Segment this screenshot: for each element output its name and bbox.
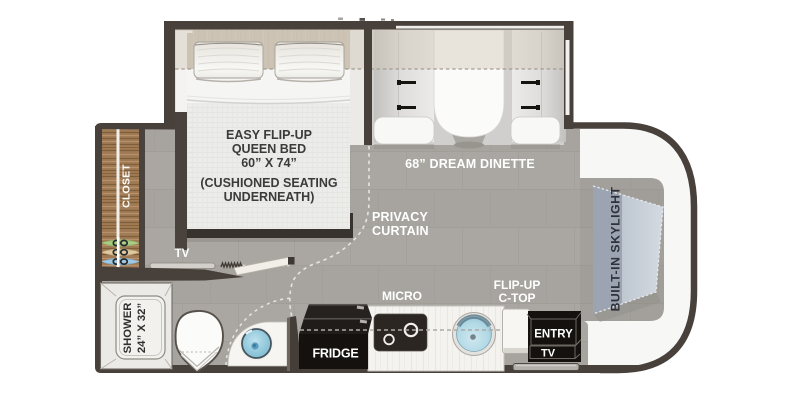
svg-text:(CUSHIONED SEATING: (CUSHIONED SEATING [200, 176, 337, 190]
svg-text:24” X 32”: 24” X 32” [136, 303, 148, 353]
svg-text:SHOWER: SHOWER [122, 303, 134, 354]
svg-text:68” DREAM DINETTE: 68” DREAM DINETTE [405, 157, 535, 171]
svg-text:ENTRY: ENTRY [534, 329, 573, 341]
svg-text:FRIDGE: FRIDGE [312, 347, 358, 361]
svg-text:BUILT-IN SKYLIGHT: BUILT-IN SKYLIGHT [609, 186, 623, 311]
svg-text:PRIVACY: PRIVACY [372, 210, 429, 224]
svg-text:TV: TV [175, 248, 190, 260]
svg-text:MICRO: MICRO [382, 289, 422, 303]
svg-text:CURTAIN: CURTAIN [372, 224, 429, 238]
svg-text:CLOSET: CLOSET [121, 164, 133, 208]
svg-text:TV: TV [541, 348, 556, 360]
svg-text:EASY FLIP-UP: EASY FLIP-UP [226, 128, 312, 142]
svg-text:UNDERNEATH): UNDERNEATH) [224, 190, 315, 204]
svg-text:FLIP-UP: FLIP-UP [494, 278, 541, 292]
svg-text:60” X 74”: 60” X 74” [241, 156, 297, 170]
svg-text:QUEEN BED: QUEEN BED [232, 142, 306, 156]
svg-text:C-TOP: C-TOP [498, 291, 535, 305]
